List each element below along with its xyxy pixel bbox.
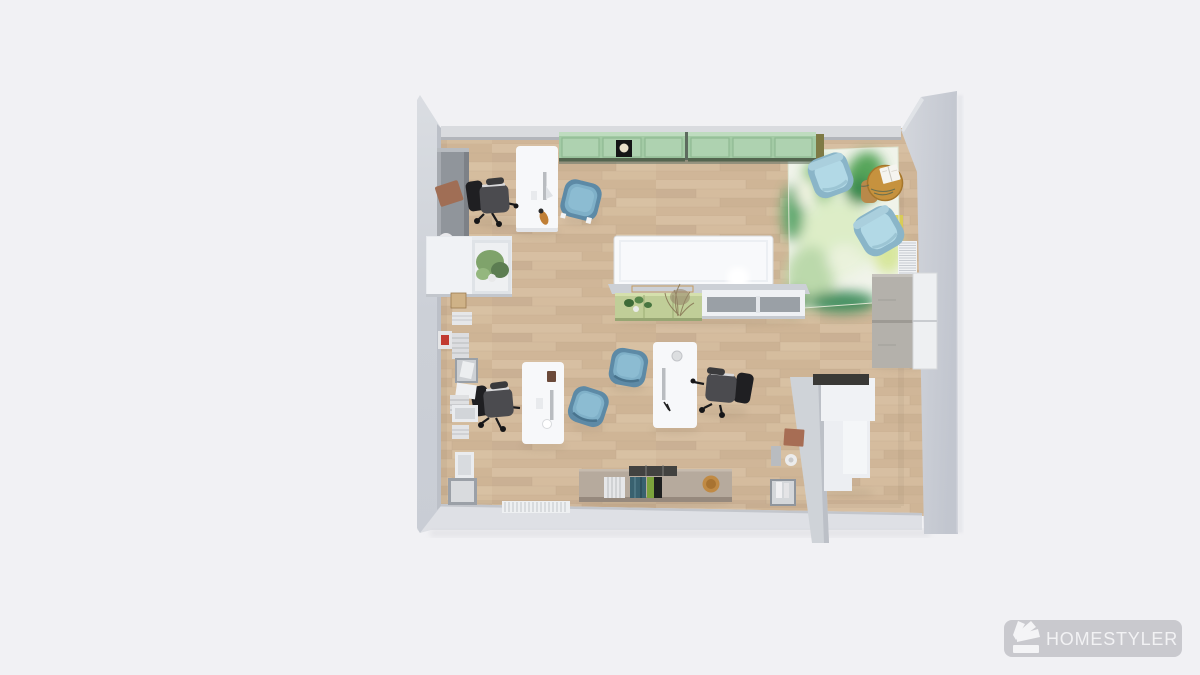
svg-text:HOMESTYLER: HOMESTYLER xyxy=(1046,629,1178,649)
